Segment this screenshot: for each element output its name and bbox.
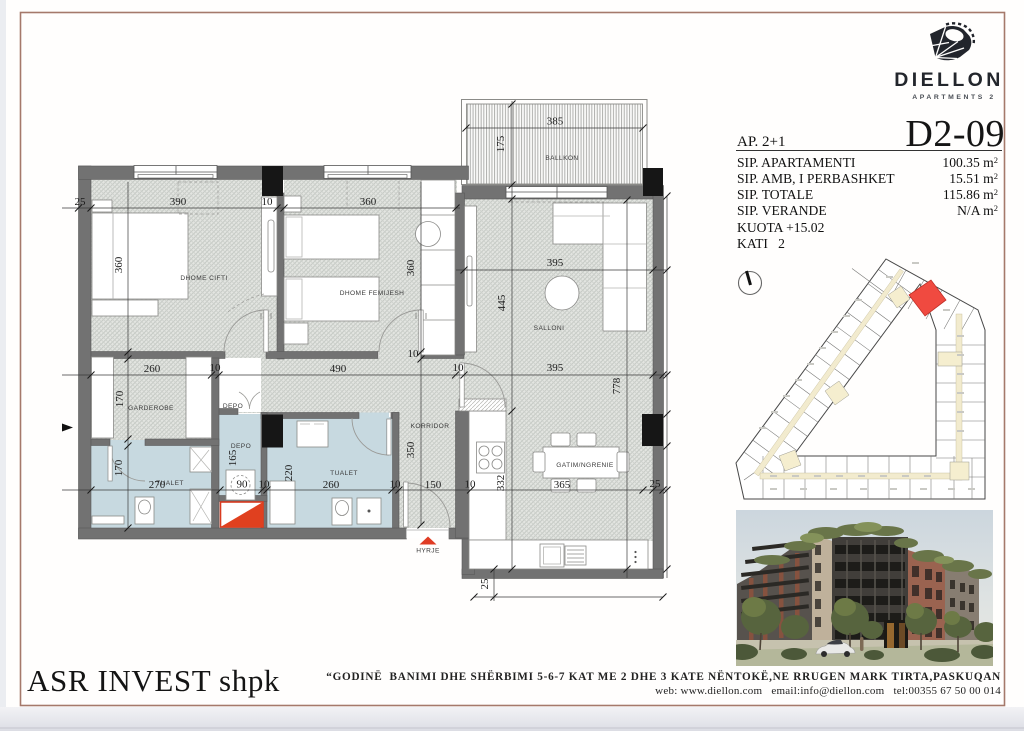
svg-text:KORRIDOR: KORRIDOR	[411, 423, 450, 430]
svg-text:10: 10	[259, 479, 271, 491]
svg-text:115.86 m2: 115.86 m2	[943, 187, 998, 202]
svg-text:395: 395	[547, 362, 564, 374]
svg-text:100.35 m2: 100.35 m2	[942, 155, 998, 170]
svg-text:170: 170	[113, 459, 125, 476]
svg-text:385: 385	[547, 116, 564, 128]
svg-text:350: 350	[405, 441, 417, 458]
svg-text:SIP. APARTAMENTI: SIP. APARTAMENTI	[737, 155, 856, 170]
svg-text:BALLKON: BALLKON	[545, 155, 578, 162]
svg-text:332: 332	[495, 475, 507, 492]
svg-text:web: www.diellon.com email:i: web: www.diellon.com email:info@diellon.…	[655, 685, 1001, 697]
svg-text:APARTMENTS 2: APARTMENTS 2	[912, 94, 996, 101]
svg-text:90: 90	[237, 479, 249, 491]
svg-text:390: 390	[170, 196, 187, 208]
svg-text:10: 10	[262, 196, 274, 208]
svg-text:360: 360	[113, 256, 125, 273]
svg-text:150: 150	[425, 479, 442, 491]
svg-text:260: 260	[323, 479, 340, 491]
svg-text:10: 10	[210, 362, 222, 374]
svg-text:360: 360	[360, 196, 377, 208]
svg-text:395: 395	[547, 257, 564, 269]
svg-text:TUALET: TUALET	[330, 470, 358, 477]
svg-text:SIP. AMB, I PERBASHKET: SIP. AMB, I PERBASHKET	[737, 171, 895, 186]
svg-text:KUOTA +15.02: KUOTA +15.02	[737, 220, 825, 235]
svg-text:25: 25	[479, 578, 491, 590]
svg-text:445: 445	[496, 294, 508, 311]
svg-text:15.51 m2: 15.51 m2	[949, 171, 998, 186]
svg-text:SALLONI: SALLONI	[534, 325, 565, 332]
svg-text:270: 270	[149, 479, 166, 491]
svg-text:D2-09: D2-09	[905, 113, 1005, 155]
svg-text:10: 10	[408, 348, 420, 360]
svg-text:AP. 2+1: AP. 2+1	[737, 134, 785, 150]
svg-text:DHOME FEMIJESH: DHOME FEMIJESH	[340, 290, 405, 297]
svg-text:365: 365	[554, 479, 571, 491]
svg-text:DEPO: DEPO	[223, 403, 243, 410]
svg-text:10: 10	[390, 479, 402, 491]
svg-text:KATI 2: KATI 2	[737, 236, 785, 251]
svg-text:SIP. TOTALE: SIP. TOTALE	[737, 187, 813, 202]
svg-text:“GODINË BANIMI DHE SHËRBIMI 5: “GODINË BANIMI DHE SHËRBIMI 5-6-7 KAT ME…	[326, 670, 1001, 683]
svg-text:778: 778	[611, 377, 623, 394]
svg-text:25: 25	[75, 196, 87, 208]
svg-text:490: 490	[330, 363, 347, 375]
svg-text:360: 360	[405, 259, 417, 276]
svg-text:175: 175	[495, 135, 507, 152]
svg-text:25: 25	[650, 478, 662, 490]
svg-text:HYRJE: HYRJE	[416, 548, 440, 555]
svg-text:220: 220	[283, 464, 295, 481]
svg-text:DEPO: DEPO	[231, 443, 251, 450]
svg-text:10: 10	[465, 479, 477, 491]
svg-text:SIP. VERANDE: SIP. VERANDE	[737, 203, 827, 218]
svg-text:165: 165	[227, 449, 239, 466]
svg-text:DHOME CIFTI: DHOME CIFTI	[180, 275, 227, 282]
svg-text:GARDEROBE: GARDEROBE	[128, 405, 174, 412]
svg-text:10: 10	[453, 362, 465, 374]
svg-text:GATIM/NGRENIE: GATIM/NGRENIE	[556, 462, 614, 469]
svg-text:DIELLON: DIELLON	[894, 69, 1003, 91]
svg-text:N/A m2: N/A m2	[957, 203, 998, 218]
svg-text:ASR INVEST shpk: ASR INVEST shpk	[27, 663, 280, 698]
svg-text:170: 170	[114, 390, 126, 407]
svg-text:260: 260	[144, 363, 161, 375]
